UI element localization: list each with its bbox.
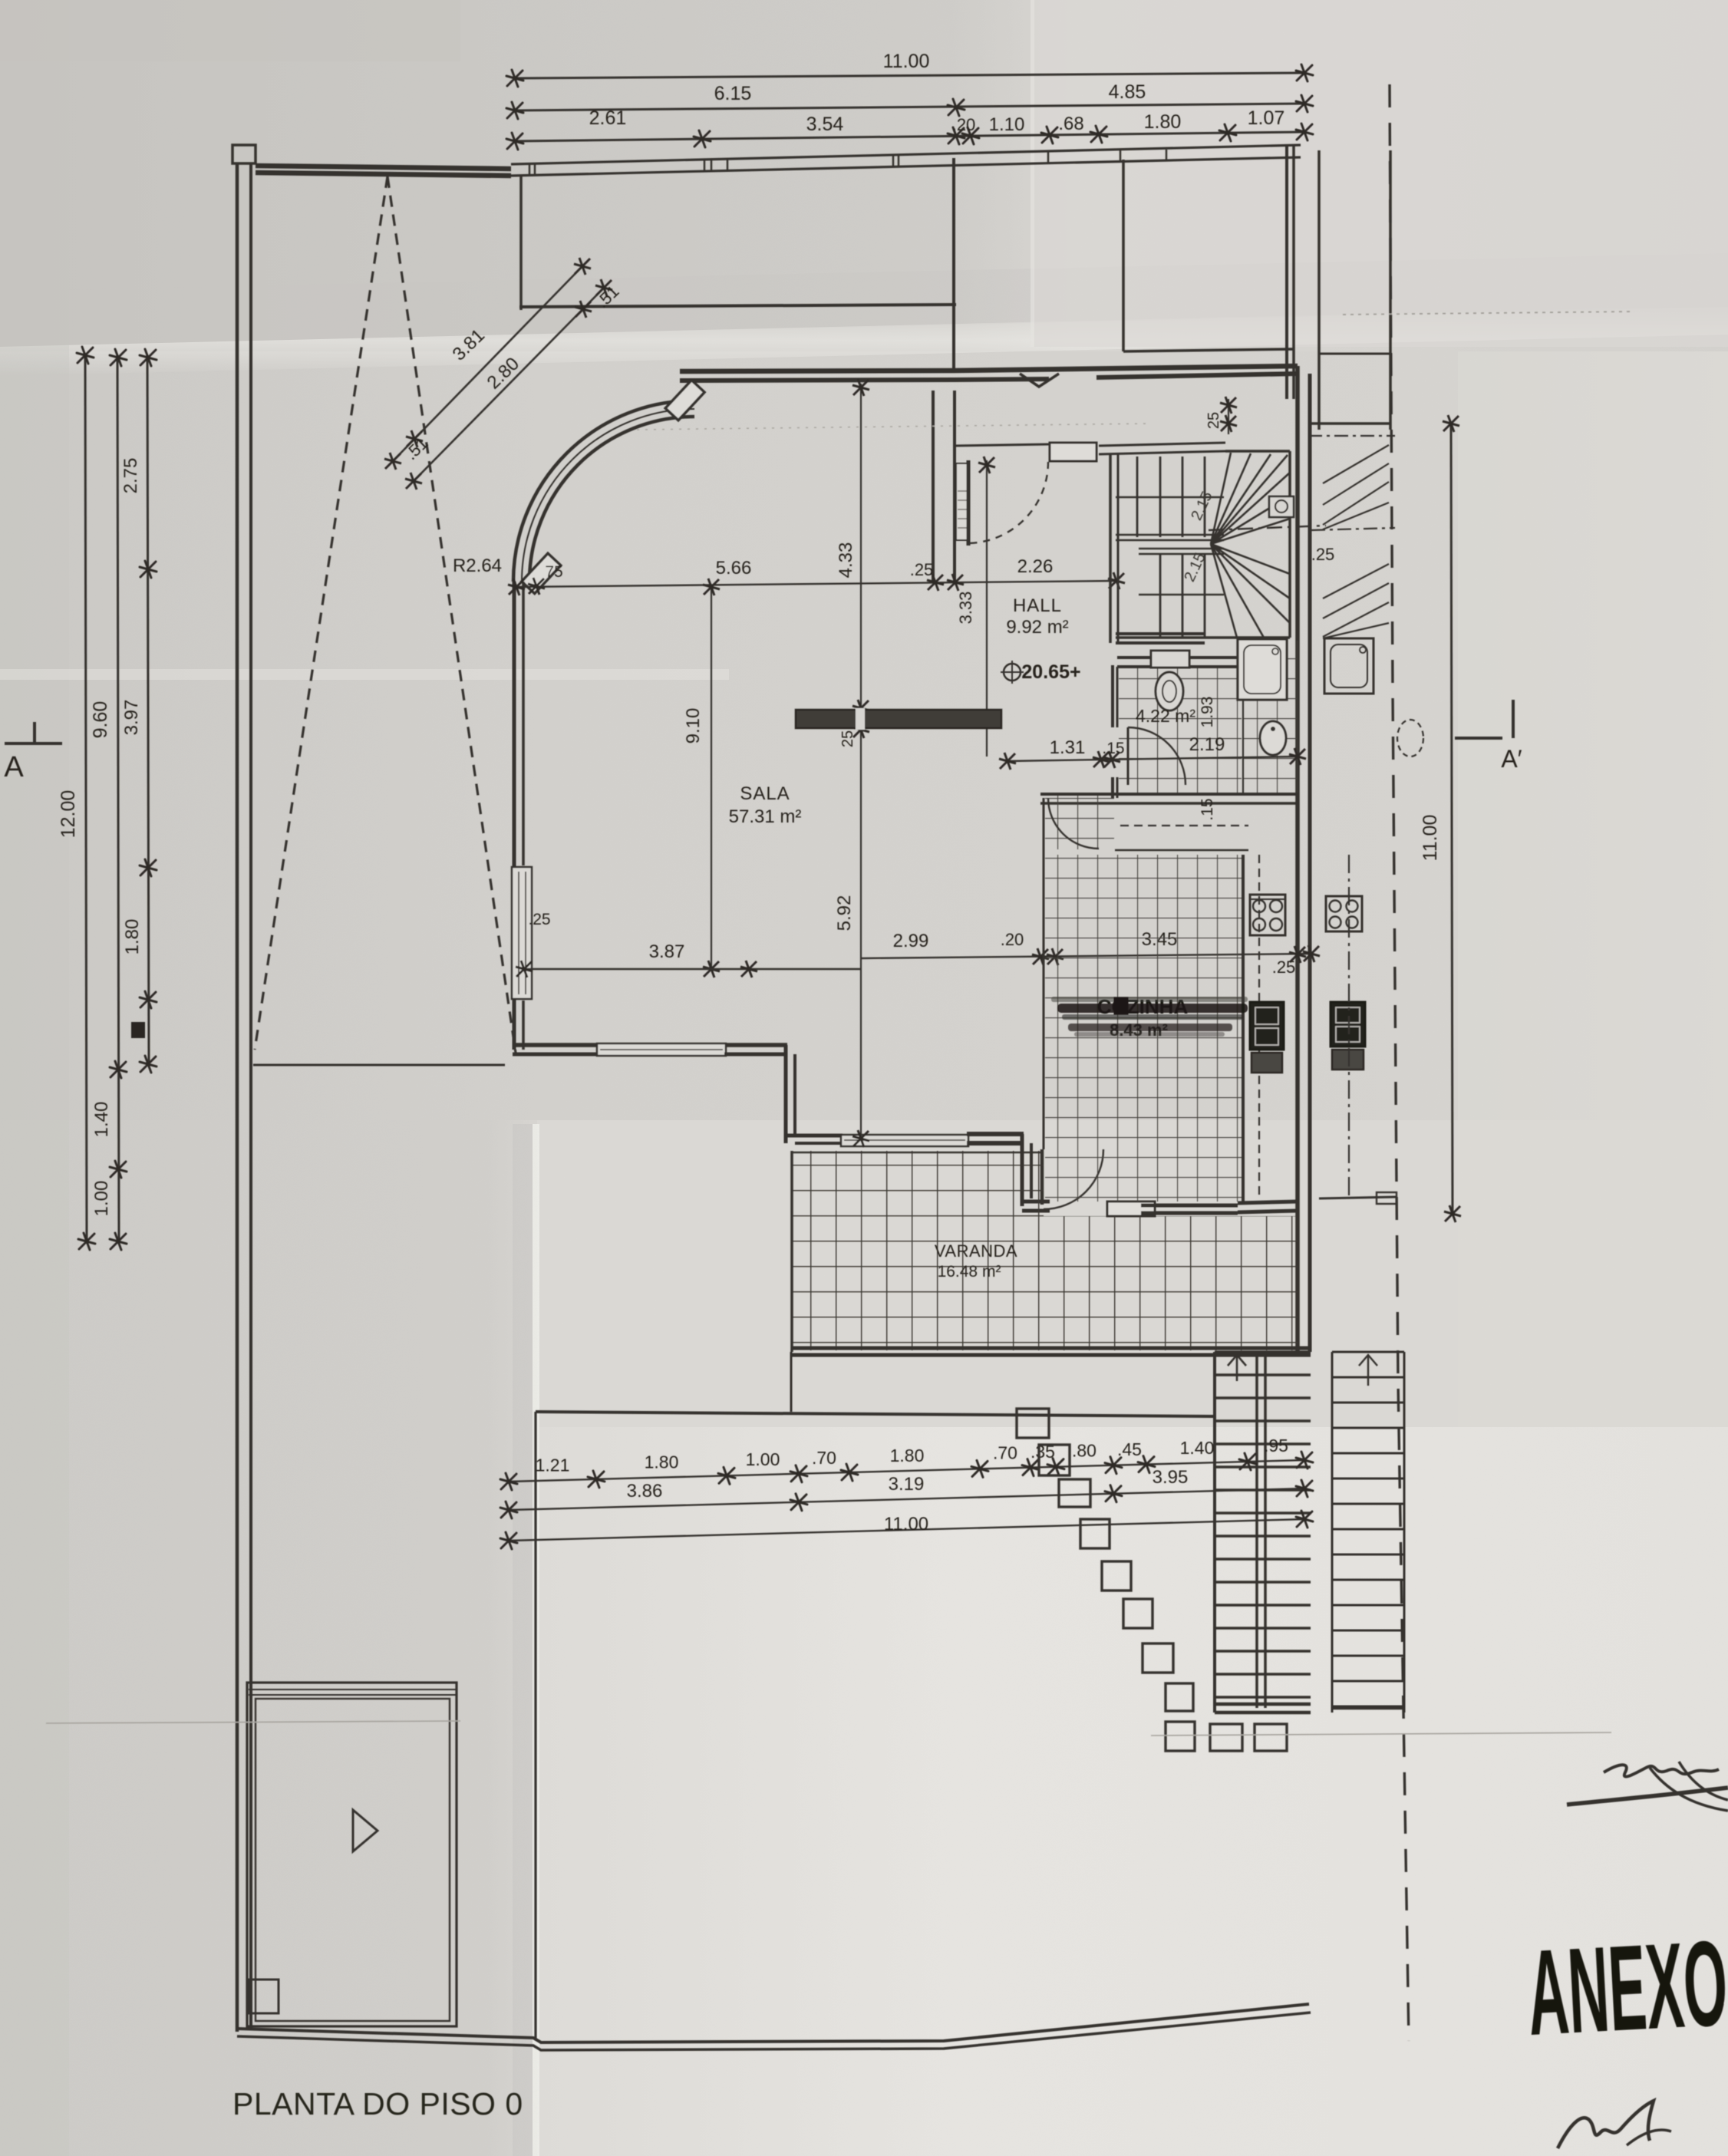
svg-text:1.21: 1.21 — [536, 1455, 570, 1475]
svg-text:1.93: 1.93 — [1199, 697, 1216, 728]
svg-text:11.00: 11.00 — [883, 51, 930, 72]
svg-text:3.86: 3.86 — [627, 1481, 663, 1502]
svg-text:.70: .70 — [812, 1448, 836, 1468]
svg-text:3.33: 3.33 — [956, 592, 975, 625]
svg-text:SALA: SALA — [740, 783, 790, 804]
svg-text:.45: .45 — [1117, 1439, 1142, 1459]
svg-text:5.66: 5.66 — [716, 558, 752, 579]
svg-text:1.80: 1.80 — [645, 1452, 679, 1472]
svg-text:75: 75 — [545, 563, 562, 581]
svg-text:1.00: 1.00 — [746, 1449, 780, 1469]
svg-text:9.10: 9.10 — [683, 708, 704, 744]
svg-text:ANEXO: ANEXO — [1525, 1916, 1728, 2061]
svg-text:5.92: 5.92 — [834, 895, 855, 931]
svg-text:6.15: 6.15 — [714, 83, 752, 104]
svg-text:A: A — [4, 751, 24, 783]
svg-text:1.00: 1.00 — [91, 1181, 112, 1217]
svg-text:3.19: 3.19 — [889, 1474, 925, 1495]
svg-text:1.80: 1.80 — [890, 1446, 925, 1465]
svg-text:2.26: 2.26 — [1017, 556, 1054, 577]
svg-text:.95: .95 — [1264, 1436, 1288, 1455]
svg-text:2.19: 2.19 — [1189, 734, 1225, 755]
svg-text:25: 25 — [839, 730, 856, 747]
svg-text:HALL: HALL — [1013, 595, 1062, 616]
svg-text:1.07: 1.07 — [1248, 107, 1285, 129]
svg-text:25: 25 — [1205, 412, 1222, 429]
svg-text:20.65+: 20.65+ — [1021, 661, 1080, 683]
svg-text:4.33: 4.33 — [836, 542, 856, 579]
svg-text:4.22 m²: 4.22 m² — [1136, 706, 1195, 726]
svg-text:3.95: 3.95 — [1153, 1467, 1189, 1488]
svg-text:9.60: 9.60 — [90, 701, 111, 739]
svg-text:4.85: 4.85 — [1109, 81, 1146, 103]
svg-text:PLANTA DO PISO 0: PLANTA DO PISO 0 — [232, 2086, 523, 2121]
svg-text:2.61: 2.61 — [589, 107, 627, 129]
svg-text:.70: .70 — [993, 1443, 1017, 1463]
svg-text:.25: .25 — [910, 560, 934, 579]
svg-text:3.54: 3.54 — [806, 114, 844, 135]
svg-text:11.00: 11.00 — [884, 1514, 928, 1535]
svg-text:1.80: 1.80 — [1144, 111, 1182, 133]
svg-text:VARANDA: VARANDA — [935, 1241, 1017, 1261]
svg-text:1.80: 1.80 — [122, 919, 143, 955]
svg-text:2.75: 2.75 — [120, 458, 141, 494]
svg-text:.15: .15 — [1199, 798, 1216, 820]
svg-text:3.87: 3.87 — [649, 941, 685, 962]
svg-text:.25: .25 — [1272, 958, 1296, 977]
svg-text:.80: .80 — [1072, 1441, 1096, 1461]
svg-text:9.92 m²: 9.92 m² — [1006, 617, 1068, 638]
svg-text:R2.64: R2.64 — [453, 555, 502, 576]
svg-text:2.99: 2.99 — [893, 931, 929, 951]
svg-text:.20: .20 — [1001, 930, 1024, 949]
svg-text:1.10: 1.10 — [989, 114, 1025, 135]
svg-text:57.31 m²: 57.31 m² — [729, 806, 802, 827]
svg-text:1.31: 1.31 — [1050, 737, 1086, 758]
svg-text:12.00: 12.00 — [58, 790, 79, 839]
svg-text:11.00: 11.00 — [1420, 815, 1441, 862]
svg-text:16.48 m²: 16.48 m² — [938, 1263, 1001, 1281]
svg-text:.20: .20 — [952, 115, 976, 134]
svg-text:3.97: 3.97 — [121, 700, 142, 736]
svg-text:1.40: 1.40 — [1180, 1438, 1215, 1458]
svg-text:.25: .25 — [1311, 545, 1335, 564]
svg-text:A′: A′ — [1501, 745, 1522, 773]
svg-text:.25: .25 — [528, 911, 550, 928]
svg-text:1.40: 1.40 — [91, 1102, 112, 1138]
svg-text:.68: .68 — [1058, 114, 1083, 134]
svg-text:.15: .15 — [1102, 740, 1124, 757]
